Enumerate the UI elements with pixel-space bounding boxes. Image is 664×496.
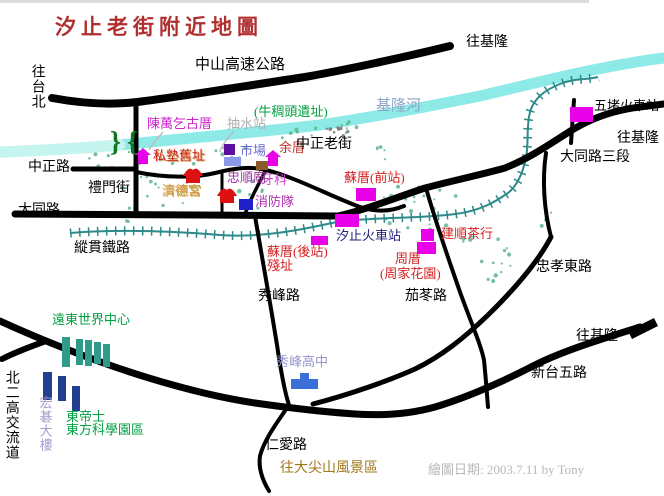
label-xizhi-station: 汐止火車站 (336, 229, 401, 243)
label-wudu-station: 五堵火車站 (594, 99, 659, 113)
label-zhongshun-temple: 忠順廟 (227, 171, 266, 185)
xizhi-old-street-map: } { (0, 0, 664, 496)
label-zongguan-railway: 縱貫鐵路 (74, 242, 130, 257)
label-jianshun-tea: 建順茶行 (441, 227, 493, 241)
zhongshun-temple-icon (217, 189, 237, 203)
label-su-back-ruins: 殘址 (267, 259, 293, 273)
map-credit: 繪圖日期: 2003.7.11 by Tony (428, 463, 584, 477)
map-title: 汐止老街附近地圖 (55, 16, 263, 38)
wudu-station-marker (570, 107, 593, 122)
road-interchange-spur (2, 341, 46, 359)
label-to-keelung-right: 往基隆 (617, 132, 659, 147)
market-purple-square (224, 144, 235, 155)
label-acer-building: 宏碁大樓 (38, 396, 52, 452)
su-front-marker (356, 188, 376, 201)
label-to-taipei: 往台北 (29, 64, 44, 109)
jianshun-tea-marker (421, 229, 434, 241)
svg-text:{: { (127, 127, 138, 158)
label-datong-sec3: 大同路三段 (560, 151, 630, 166)
label-keelung-river: 基隆河 (376, 99, 421, 115)
label-limen-street: 禮門街 (88, 182, 130, 197)
label-market: 市場 (240, 144, 266, 158)
label-dongfang-science-park: 東方科學園區 (66, 423, 144, 437)
label-chen-wanqi-house: 陳萬乞古厝 (147, 117, 212, 131)
label-qiedong-rd: 茄苳路 (405, 290, 447, 305)
xizhi-station-marker (335, 214, 359, 227)
label-jide-temple: 濟德宮 (162, 184, 201, 198)
label-datong-rd: 大同路 (18, 204, 60, 219)
label-n2-interchange: 北二高交流道 (3, 370, 18, 460)
label-su-front: 蘇厝(前站) (344, 171, 405, 185)
road-zhongshan-freeway (52, 46, 450, 104)
fire-dept-square (239, 199, 253, 210)
label-to-dajianshan: 往大尖山風景區 (280, 462, 378, 477)
label-xiufeng-hs: 秀峰高中 (276, 355, 328, 369)
label-xintai-5th-rd: 新台五路 (531, 367, 587, 382)
label-pump-station: 抽水站 (227, 117, 266, 131)
arrow-to-keelung-bottom (630, 322, 656, 335)
jide-temple-icon (183, 169, 203, 183)
market-blue-rect (224, 157, 241, 166)
label-zhongzheng-old-street: 中正老街 (296, 138, 352, 153)
label-yuandong-center: 遠東世界中心 (52, 313, 130, 327)
road-datong-sec3-south (544, 153, 551, 237)
label-xiufeng-rd: 秀峰路 (258, 290, 300, 305)
label-su-back: 蘇厝(後站) (267, 245, 328, 259)
label-to-keelung-top: 往基隆 (466, 36, 508, 51)
label-to-keelung-bottom: 往基隆 (576, 330, 618, 345)
xiufeng-school-icon (291, 373, 318, 389)
yu-house-brown-square (256, 161, 268, 170)
keelung-river-west-pale (0, 145, 120, 152)
label-zhongxiao-e-rd: 忠孝東路 (536, 261, 592, 276)
road-zhongxiao-east (313, 237, 551, 404)
label-zhou-garden: (周家花園) (380, 267, 441, 281)
label-zhou-house: 周厝 (395, 252, 421, 266)
label-zhongzheng-rd: 中正路 (28, 161, 70, 176)
label-fire-dept: 消防隊 (255, 195, 294, 209)
svg-text:}: } (110, 127, 121, 158)
label-sishu-site: 私塾舊址 (153, 149, 205, 163)
label-renai-rd: 仁愛路 (265, 439, 307, 454)
label-freeway: 中山高速公路 (195, 58, 285, 74)
